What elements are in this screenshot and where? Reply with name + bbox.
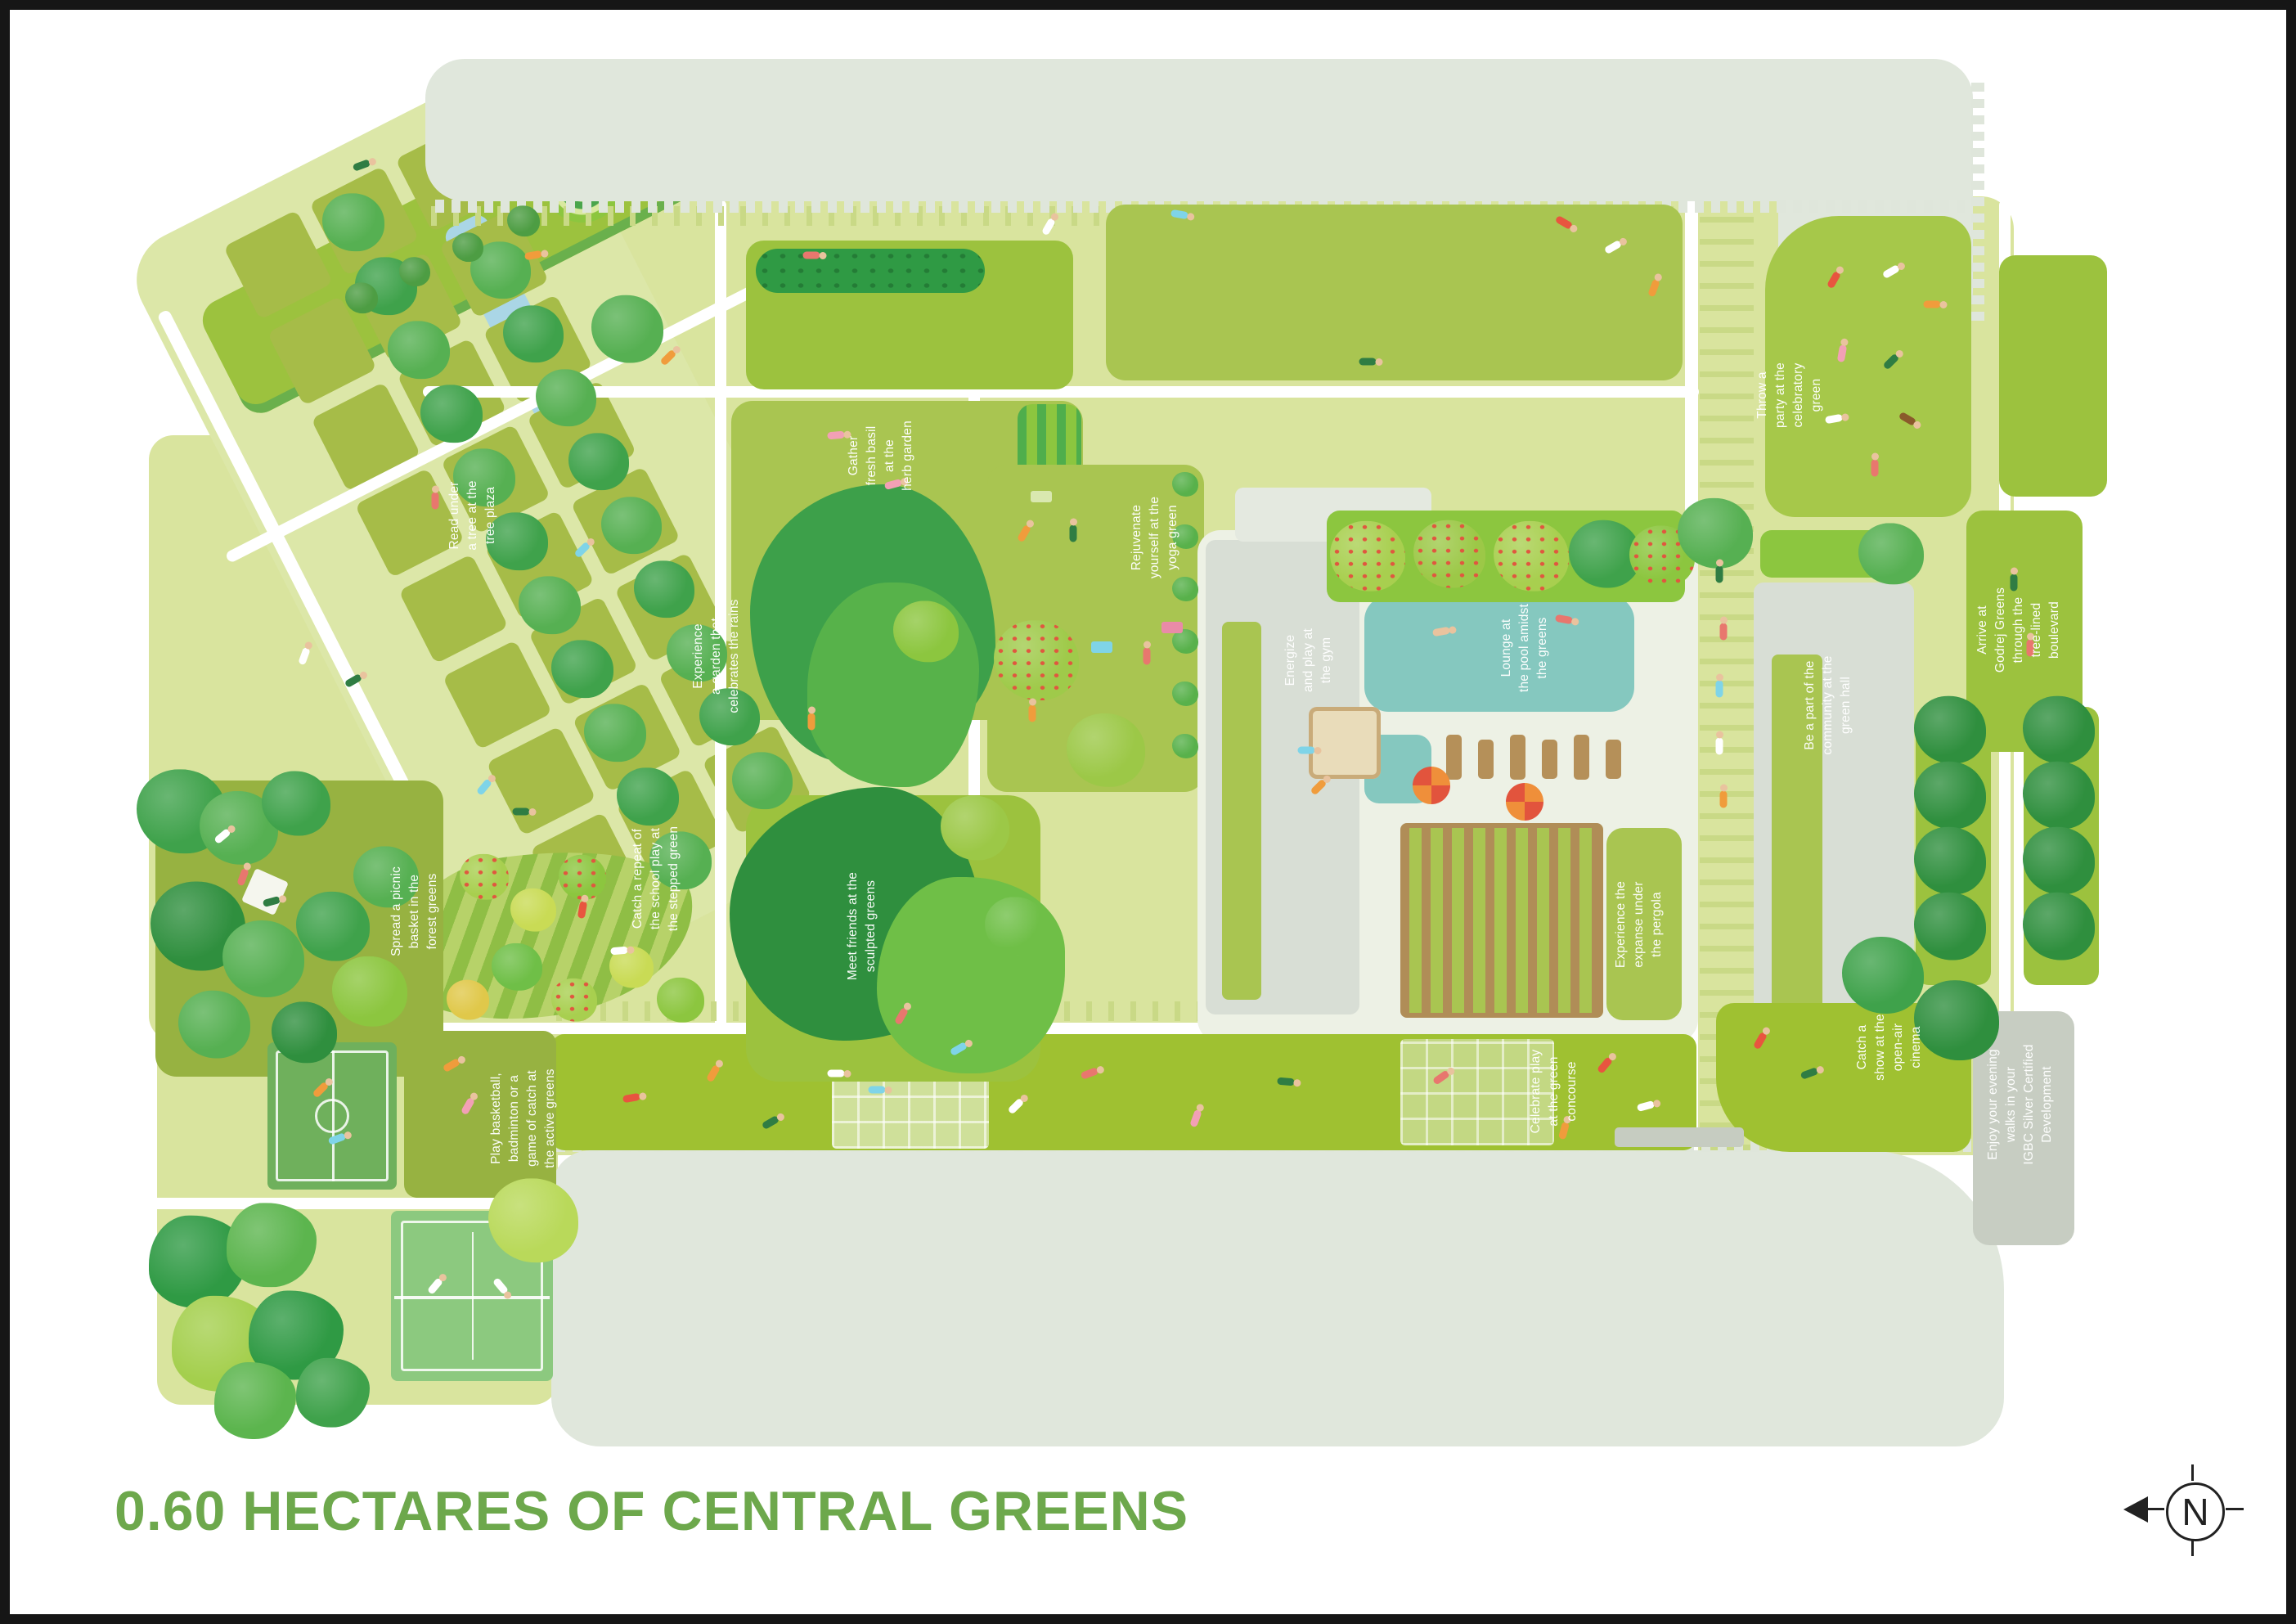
- compass-tick-south: [2191, 1540, 2194, 1556]
- label-green-hall: Be a part of the community at the green …: [1801, 655, 1855, 754]
- tree-icon: [214, 1362, 296, 1439]
- person-figure: [1716, 566, 1723, 583]
- tree-icon: [178, 991, 250, 1059]
- tree-icon: [1172, 577, 1198, 601]
- tree-icon: [732, 752, 793, 809]
- tree-icon: [296, 1358, 370, 1428]
- zone-top-lawn: [1106, 205, 1683, 380]
- sun-lounger: [1574, 735, 1589, 780]
- zone-pergola: [1400, 823, 1603, 1018]
- zone-basketball-court: [267, 1042, 397, 1190]
- tree-icon: [1413, 520, 1485, 588]
- compass-letter: N: [2181, 1490, 2208, 1534]
- tree-icon: [591, 295, 663, 363]
- tennis-center-line: [472, 1232, 474, 1360]
- label-active-greens: Play basketball, badminton or a game of …: [488, 1068, 559, 1167]
- tree-icon: [1914, 893, 1986, 960]
- tree-icon: [2023, 762, 2095, 830]
- umbrella-icon: [1506, 783, 1543, 821]
- tree-icon: [503, 305, 564, 362]
- label-yoga-green: Rejuvenate yourself at the yoga green: [1128, 497, 1182, 578]
- label-stepped-green: Catch a repeat of the school play at the…: [629, 826, 683, 931]
- tree-icon: [551, 978, 597, 1022]
- yoga-mat: [1161, 622, 1183, 633]
- plaza-lawn-cell: [311, 382, 420, 492]
- label-pergola: Experience the expanse under the pergola: [1612, 881, 1666, 968]
- person-figure: [803, 252, 820, 259]
- compass: N: [2112, 1458, 2276, 1581]
- compass-ring: N: [2166, 1482, 2225, 1541]
- tree-icon: [893, 601, 959, 662]
- tree-icon: [1914, 696, 1986, 764]
- person-figure: [1359, 358, 1377, 366]
- person-figure: [1277, 1077, 1295, 1086]
- yoga-mat: [1031, 491, 1052, 502]
- right-top-lawn: [1999, 255, 2107, 497]
- person-figure: [869, 1086, 886, 1094]
- building-hatch-right: [1971, 75, 1984, 321]
- person-figure: [808, 713, 816, 731]
- tree-icon: [994, 620, 1079, 700]
- tree-icon: [492, 943, 542, 991]
- person-figure: [1720, 623, 1728, 641]
- tree-icon: [345, 282, 378, 313]
- tree-icon: [601, 497, 662, 554]
- person-figure: [1924, 301, 1941, 308]
- tree-icon: [510, 888, 556, 932]
- yoga-mat: [1091, 641, 1112, 653]
- tree-icon: [2023, 696, 2095, 764]
- tree-icon: [657, 978, 704, 1023]
- tree-icon: [460, 854, 509, 900]
- north-arrow-icon: [2123, 1496, 2148, 1523]
- person-figure: [1029, 705, 1036, 722]
- label-open-air-cinema: Catch a show at the open-air cinema: [1853, 1014, 1925, 1080]
- tree-icon: [296, 892, 370, 961]
- person-figure: [513, 808, 530, 816]
- person-figure: [1298, 747, 1315, 754]
- tree-icon: [1914, 827, 1986, 895]
- gym-roof-green: [1222, 622, 1261, 1000]
- person-figure: [1716, 738, 1723, 755]
- tree-icon: [1858, 523, 1924, 584]
- tree-icon: [568, 433, 629, 490]
- label-pool: Lounge at the pool amidst the greens: [1498, 604, 1552, 692]
- rain-garden-mass-2: [807, 583, 979, 787]
- page-title: 0.60 HECTARES OF CENTRAL GREENS: [115, 1479, 1188, 1543]
- person-figure: [432, 493, 439, 510]
- building-footprint-bottom: [551, 1150, 2004, 1446]
- tree-icon: [559, 855, 606, 900]
- deco-hedge: [756, 249, 985, 293]
- person-figure: [1144, 648, 1151, 665]
- tree-icon: [1914, 762, 1986, 830]
- sun-lounger: [1606, 740, 1621, 779]
- person-figure: [1720, 791, 1728, 808]
- cinema-screen: [1615, 1127, 1744, 1147]
- label-forest-greens: Spread a picnic basket in the forest gre…: [388, 866, 442, 956]
- person-figure: [1070, 525, 1077, 542]
- tree-icon: [507, 205, 540, 236]
- label-igbc: Enjoy your evening walks in your IGBC Si…: [1984, 1044, 2056, 1164]
- label-tree-plaza: Read under a tree at the tree plaza: [446, 480, 500, 550]
- tree-icon: [2023, 827, 2095, 895]
- plaza-lawn-cell: [486, 726, 595, 835]
- tree-icon: [447, 980, 489, 1020]
- compass-tick-east: [2226, 1508, 2244, 1510]
- tree-icon: [262, 772, 330, 836]
- basketball-center-circle: [315, 1099, 349, 1133]
- tree-icon: [1172, 472, 1198, 497]
- sun-lounger: [1478, 740, 1494, 779]
- tree-icon: [634, 560, 694, 618]
- person-figure: [1871, 460, 1879, 477]
- tree-icon: [399, 257, 430, 286]
- label-gym: Energize and play at the gym: [1282, 628, 1336, 692]
- compass-tick-north: [2191, 1464, 2194, 1481]
- tree-icon: [941, 796, 1009, 861]
- umbrella-icon: [1413, 767, 1450, 804]
- sun-lounger: [1542, 740, 1557, 779]
- masterplan-frame: 0.60 HECTARES OF CENTRAL GREENS N Read u…: [0, 0, 2296, 1624]
- compass-tick-west: [2148, 1508, 2164, 1510]
- tree-icon: [536, 369, 596, 426]
- sun-lounger: [1446, 735, 1462, 780]
- tree-icon: [1172, 734, 1198, 758]
- building-footprint-top: [425, 59, 1971, 201]
- plaza-lawn-cell: [398, 554, 508, 664]
- tree-icon: [452, 232, 483, 262]
- zone-playground: [1309, 707, 1381, 779]
- label-rain-garden: Experience a garden that celebrates the …: [690, 599, 744, 713]
- plaza-lawn-cell: [443, 640, 552, 749]
- tree-icon: [272, 1001, 337, 1063]
- tree-icon: [1172, 682, 1198, 706]
- label-herb-garden: Gather fresh basil at the herb garden: [845, 421, 917, 491]
- person-figure: [1716, 681, 1723, 698]
- label-sculpted-greens: Meet friends at the sculpted greens: [844, 872, 880, 980]
- label-celebratory-green: Throw a party at the celebratory green: [1754, 362, 1826, 428]
- label-boulevard: Arrive at Godrej Greens through the tree…: [1974, 587, 2064, 673]
- person-figure: [828, 1070, 845, 1077]
- sun-lounger: [1510, 735, 1525, 780]
- label-green-concourse: Celebrate play at the green concourse: [1527, 1050, 1581, 1134]
- tree-icon: [2023, 893, 2095, 960]
